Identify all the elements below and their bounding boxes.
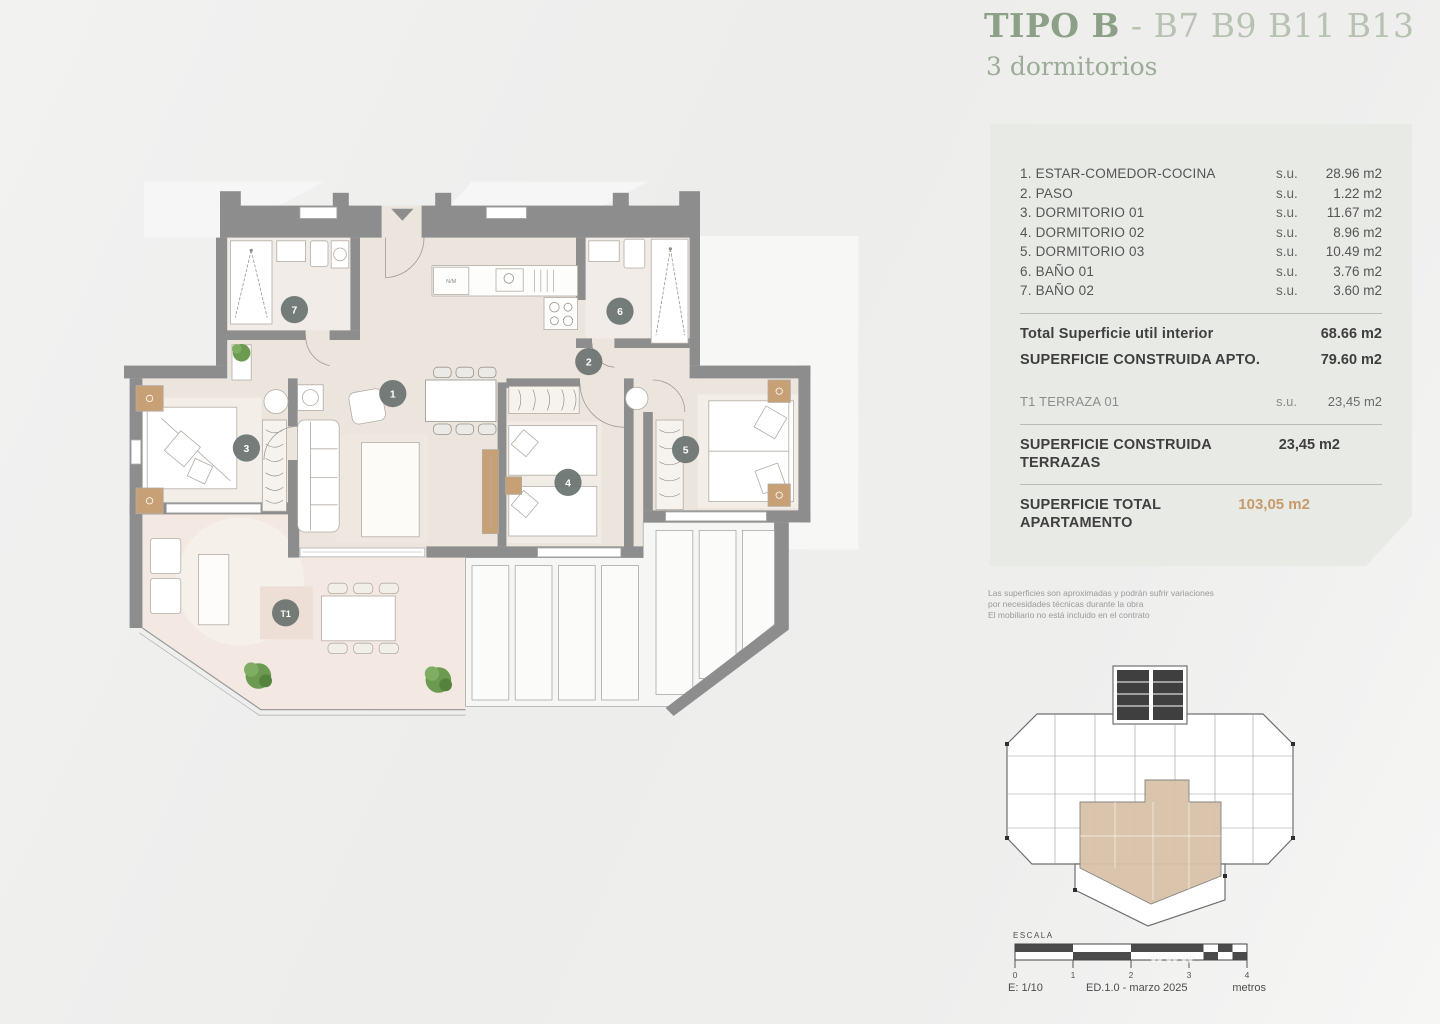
room-badge-2: 2 bbox=[586, 358, 592, 369]
edition-date: ED.1.0 - marzo 2025 bbox=[1086, 982, 1206, 994]
svg-text:3: 3 bbox=[1187, 970, 1192, 980]
room-row: 7. BAÑO 02 s.u. 3.60 m2 bbox=[1020, 281, 1382, 301]
total-util-row: Total Superficie util interior 68.66 m2 bbox=[1020, 324, 1382, 344]
room-badge-4: 4 bbox=[565, 478, 571, 489]
room-badge-1: 1 bbox=[390, 390, 396, 401]
page-title: TIPO B - B7 B9 B11 B13 bbox=[984, 6, 1415, 45]
unit-numbers: - B7 B9 B11 B13 bbox=[1120, 6, 1415, 45]
units-label: metros bbox=[1206, 982, 1266, 994]
svg-text:1: 1 bbox=[1071, 970, 1076, 980]
construida-terrazas-row: SUPERFICIE CONSTRUIDA TERRAZAS 23,45 m2 bbox=[1020, 435, 1382, 472]
room-row: 1. ESTAR-COMEDOR-COCINA s.u. 28.96 m2 bbox=[1020, 164, 1382, 184]
divider bbox=[1020, 313, 1382, 314]
type-label: TIPO B bbox=[984, 6, 1120, 45]
kitchen-appliance-label: N/M bbox=[446, 279, 457, 285]
svg-text:4: 4 bbox=[1245, 970, 1250, 980]
floorplan-page: N/M bbox=[0, 0, 1440, 1024]
terrace-badge: T1 bbox=[280, 609, 290, 619]
page-subtitle: 3 dormitorios bbox=[986, 52, 1157, 81]
room-row: 6. BAÑO 01 s.u. 3.76 m2 bbox=[1020, 262, 1382, 282]
construida-apto-row: SUPERFICIE CONSTRUIDA APTO. 79.60 m2 bbox=[1020, 350, 1382, 370]
scale-ratio: E: 1/10 bbox=[1008, 982, 1086, 994]
room-row: 2. PASO s.u. 1.22 m2 bbox=[1020, 184, 1382, 204]
svg-text:2: 2 bbox=[1129, 970, 1134, 980]
room-row: 3. DORMITORIO 01 s.u. 11.67 m2 bbox=[1020, 203, 1382, 223]
svg-text:0: 0 bbox=[1013, 970, 1018, 980]
room-badge-7: 7 bbox=[292, 306, 298, 317]
divider bbox=[1020, 424, 1382, 425]
disclaimer: Las superficies son aproximadas y podrán… bbox=[988, 588, 1308, 621]
divider bbox=[1020, 484, 1382, 485]
floor-plan-drawing: N/M bbox=[0, 180, 960, 900]
surface-panel: 1. ESTAR-COMEDOR-COCINA s.u. 28.96 m2 2.… bbox=[990, 124, 1412, 566]
room-row: 4. DORMITORIO 02 s.u. 8.96 m2 bbox=[1020, 223, 1382, 243]
room-badge-3: 3 bbox=[244, 444, 250, 455]
building-key-plan bbox=[985, 652, 1315, 942]
room-badge-5: 5 bbox=[683, 446, 689, 457]
room-badge-6: 6 bbox=[617, 307, 623, 318]
terraza-row: T1 TERRAZA 01 s.u. 23,45 m2 bbox=[1020, 392, 1382, 412]
scale-title: ESCALA bbox=[1013, 931, 1054, 940]
watermark: www bbox=[1150, 948, 1430, 968]
scale-labels: E: 1/10 ED.1.0 - marzo 2025 metros bbox=[1008, 982, 1268, 994]
room-row: 5. DORMITORIO 03 s.u. 10.49 m2 bbox=[1020, 242, 1382, 262]
total-apartamento-row: SUPERFICIE TOTAL APARTAMENTO 103,05 m2 bbox=[1020, 495, 1382, 532]
